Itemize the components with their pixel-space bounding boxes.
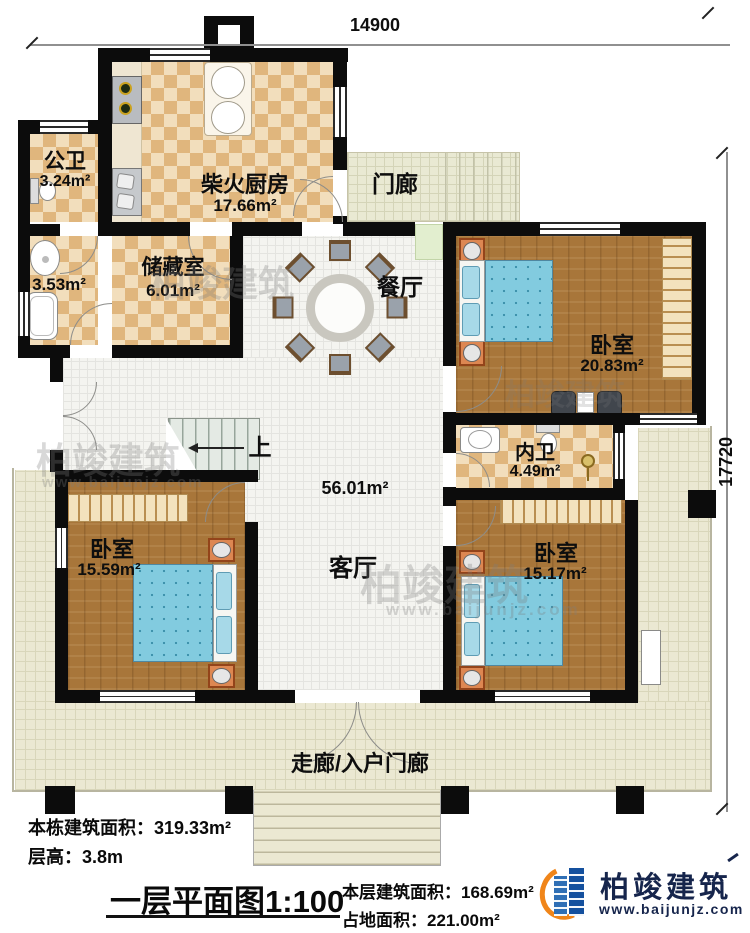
area-label-public-bath: 3.24m² (20, 173, 110, 191)
stairs-up-arrow (196, 447, 244, 449)
dimension-right-value: 17720 (717, 432, 737, 492)
watermark: 柏竣建筑 (150, 255, 294, 307)
title-underline (106, 915, 340, 918)
wall-segment (333, 48, 347, 87)
basin-drain (42, 256, 49, 263)
wall-segment (333, 137, 347, 170)
total-area-row: 本栋建筑面积：319.33m² (28, 814, 231, 840)
brand-logo-icon (540, 860, 595, 924)
nightstand (459, 666, 485, 690)
wall-segment (245, 522, 258, 702)
wall-segment (55, 690, 100, 703)
window (18, 292, 30, 336)
porch-steps (445, 153, 519, 221)
watermark: www.baijunjz.com (42, 474, 203, 491)
ground-area-row: 占地面积：221.00m² (342, 906, 500, 931)
window (100, 690, 195, 703)
floor-area-row: 本层建筑面积：168.69m² (342, 878, 534, 903)
floor-height-row: 层高：3.8m (28, 843, 123, 869)
sink-basin (116, 173, 135, 190)
pillow (464, 622, 480, 656)
dining-chair (329, 354, 351, 375)
shower-head (581, 454, 595, 468)
wall-segment (232, 222, 302, 236)
wall-segment (590, 690, 638, 703)
watermark: 柏竣建筑 (505, 370, 625, 414)
wardrobe (500, 498, 622, 524)
veranda-left (15, 470, 58, 702)
bathtub-inner (30, 296, 54, 336)
wardrobe (662, 238, 692, 380)
ground-area-value: 221.00m² (427, 911, 500, 930)
sink-bowl (468, 430, 492, 449)
wall-segment (625, 500, 638, 702)
veranda-edge (710, 426, 712, 792)
wall-segment (98, 62, 112, 236)
ground-area-label: 占地面积： (342, 911, 427, 930)
window (540, 222, 620, 236)
floor-plan-canvas: 柴火厨房 17.66m² 公卫 3.24m² 3.53m² 储藏室 6.01m²… (0, 0, 750, 933)
wardrobe (66, 494, 188, 522)
stove-burner (119, 102, 132, 115)
veranda-edge (12, 468, 14, 792)
room-label-corridor: 走廊/入户门廊 (250, 752, 470, 776)
dimension-top-value: 14900 (325, 16, 425, 36)
area-label-kitchen: 17.66m² (165, 197, 325, 216)
wall-segment (343, 222, 415, 236)
wall-segment (443, 236, 456, 366)
window (640, 413, 697, 425)
wall-segment (443, 500, 456, 506)
pillow (462, 303, 480, 336)
window (495, 690, 590, 703)
room-label-public-bath: 公卫 (20, 150, 110, 173)
entry-steps (253, 790, 441, 866)
column (225, 786, 253, 814)
wall-segment (692, 222, 706, 425)
wall-segment (195, 690, 258, 703)
brand-name: 柏竣建筑 (600, 864, 732, 906)
floor-height-label: 层高： (28, 847, 82, 867)
wall-segment (112, 345, 242, 358)
wall-segment (255, 690, 295, 703)
room-label-porch: 门廊 (355, 172, 435, 197)
window (613, 433, 625, 479)
bench (641, 630, 661, 685)
watermark: www.baijunjz.com (386, 600, 581, 620)
logo-building (554, 876, 567, 916)
wall-segment (18, 224, 60, 236)
wall-segment (18, 345, 70, 358)
dimension-tick (702, 7, 715, 20)
column (45, 786, 75, 814)
brand-website: www.baijunjz.com (599, 901, 744, 917)
dining-chair (329, 240, 351, 261)
bed (485, 260, 553, 342)
logo-building (569, 868, 584, 916)
wall-segment (443, 222, 540, 236)
stairs-arrow-head (188, 443, 198, 453)
floor-height-value: 3.8m (82, 847, 123, 867)
chimney-flue (218, 25, 240, 45)
window (150, 48, 210, 62)
wall-segment (443, 413, 640, 425)
nightstand (459, 340, 485, 366)
wall-segment (697, 413, 706, 425)
room-label-bedroom-sw: 卧室 (72, 538, 152, 562)
column (688, 490, 716, 518)
room-label-dining: 餐厅 (360, 275, 440, 300)
nightstand (208, 538, 235, 562)
wall-segment (50, 358, 63, 382)
room-label-kitchen: 柴火厨房 (165, 173, 325, 197)
plan-title-text: 一层平面图 (110, 884, 265, 919)
floor-area-label: 本层建筑面积： (342, 883, 461, 902)
pillow (216, 572, 232, 610)
column (616, 786, 644, 814)
total-area-label: 本栋建筑面积： (28, 818, 154, 838)
wall-segment (98, 222, 190, 236)
room-label-inner-bath: 内卫 (500, 442, 570, 464)
area-label-bedroom-sw: 15.59m² (66, 561, 152, 580)
stove-pot-hole (211, 101, 245, 134)
wall-segment (245, 470, 258, 482)
window (333, 87, 347, 137)
wall-segment (443, 488, 625, 500)
door-mat (415, 224, 443, 260)
total-area-value: 319.33m² (154, 818, 231, 838)
toilet-tank (536, 424, 560, 433)
stove-burner (119, 82, 132, 95)
plan-scale: 1:100 (265, 884, 344, 919)
floor-area-value: 168.69m² (461, 883, 534, 902)
wall-segment (443, 425, 456, 453)
logo-accent-mark (727, 853, 739, 862)
nightstand (208, 664, 235, 688)
window (40, 120, 88, 134)
column (441, 786, 469, 814)
dimension-line-top (30, 44, 730, 46)
wall-segment (420, 690, 443, 703)
area-label-inner-bath: 4.49m² (498, 463, 572, 481)
stairs-up-label: 上 (240, 435, 280, 460)
area-label-small-bath: 3.53m² (14, 276, 104, 295)
stove-pot-hole (211, 66, 245, 99)
pillow (462, 266, 480, 299)
sink-basin (116, 193, 135, 210)
area-label-living: 56.01m² (310, 479, 400, 499)
room-label-bedroom-ne: 卧室 (572, 334, 652, 358)
wall-segment (55, 568, 68, 690)
shower-stem (587, 468, 589, 481)
dimension-tick (26, 37, 39, 50)
pillow (216, 616, 232, 654)
wall-segment (443, 690, 495, 703)
